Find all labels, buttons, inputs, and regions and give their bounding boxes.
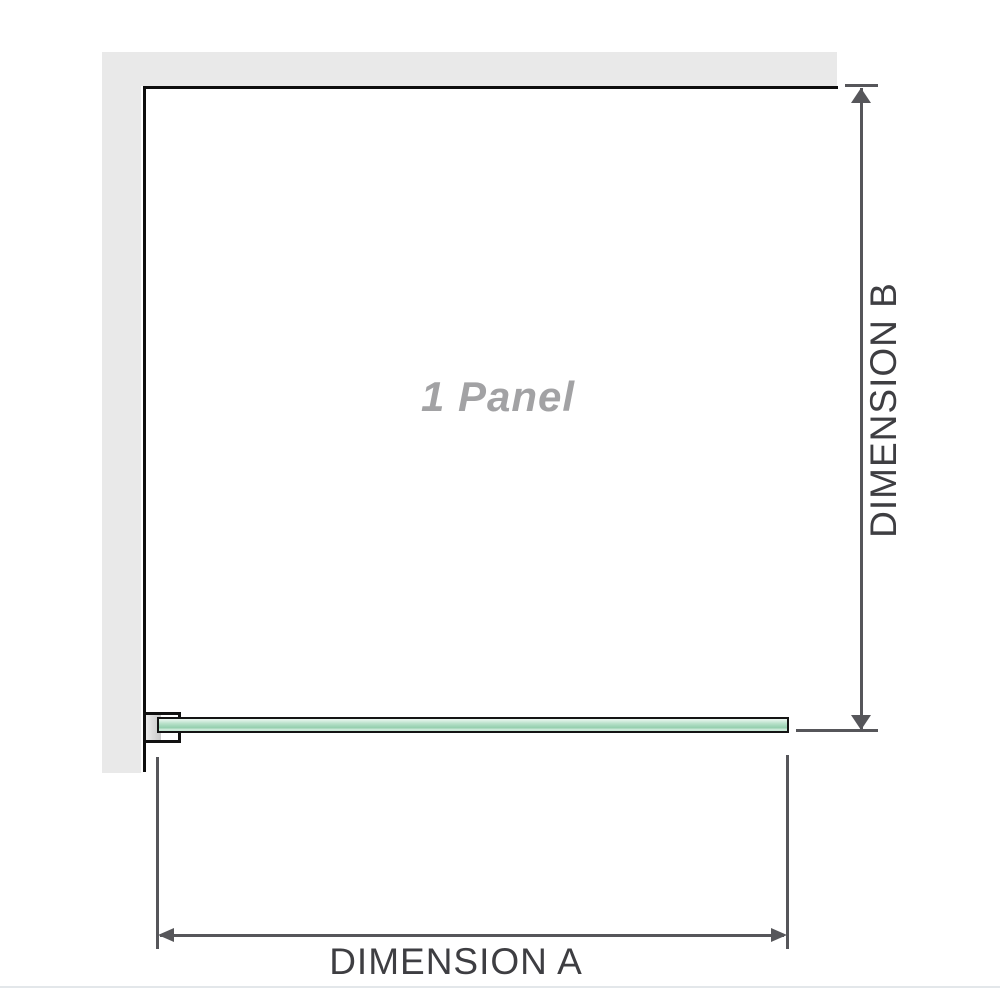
dimension-a-extension-right xyxy=(786,755,789,949)
arrow-right-icon xyxy=(771,928,787,942)
glass-panel xyxy=(157,717,789,733)
arrow-down-icon xyxy=(851,715,871,730)
panel-outline-left xyxy=(143,86,146,772)
dimension-a-label: DIMENSION A xyxy=(306,940,606,984)
arrow-left-icon xyxy=(158,928,174,942)
dimension-b-label: DIMENSION B xyxy=(859,260,909,560)
wall-left-bar xyxy=(102,52,141,773)
dimension-a-extension-left xyxy=(156,757,159,949)
panel-outline-top xyxy=(143,86,838,89)
dimension-b-tick-top xyxy=(845,84,878,87)
panel-dimension-diagram: 1 Panel DIMENSION B DIMENSION A xyxy=(0,0,1000,1000)
wall-top-bar xyxy=(102,52,837,86)
panel-count-label: 1 Panel xyxy=(348,370,648,424)
bottom-divider xyxy=(0,986,1000,988)
dimension-a-line xyxy=(160,934,784,937)
arrow-up-icon xyxy=(851,88,871,103)
